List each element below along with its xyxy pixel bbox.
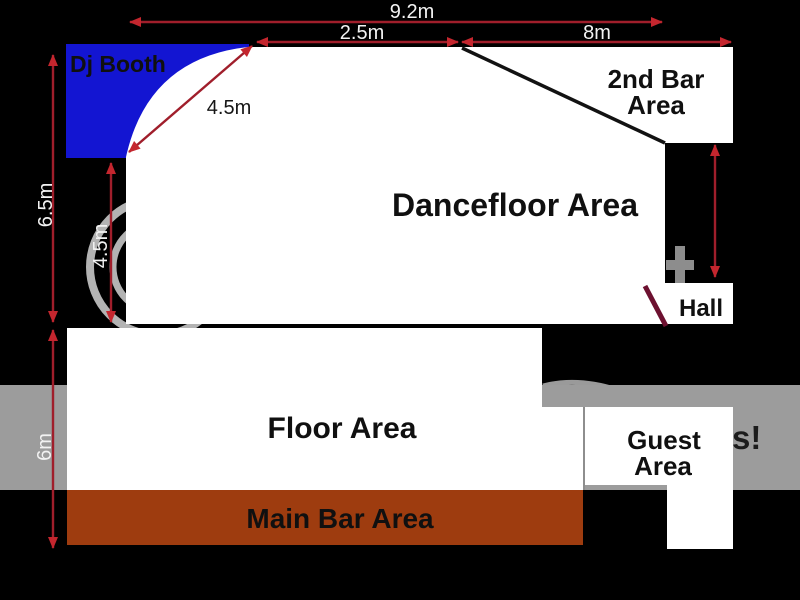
- dim-label-4-5m-left: 4.5m: [90, 224, 112, 268]
- dim-label-6m: 6m: [34, 433, 56, 461]
- floorplan-canvas: P s! Dj Booth Dancefloor Area 2nd Bar Ar…: [0, 0, 800, 600]
- main-bar-label: Main Bar Area: [246, 503, 434, 534]
- dim-label-8m: 8m: [583, 22, 611, 44]
- floorplan-svg: P s! Dj Booth Dancefloor Area 2nd Bar Ar…: [0, 0, 800, 600]
- floor-area: [67, 328, 583, 490]
- dim-label-6-5m: 6.5m: [35, 183, 57, 227]
- hall-label: Hall: [679, 295, 723, 322]
- dim-label-4-5m-diagonal: 4.5m: [207, 97, 251, 119]
- dim-label-9-2m: 9.2m: [390, 1, 434, 23]
- dim-label-2-5m: 2.5m: [340, 22, 384, 44]
- floor-area-label: Floor Area: [268, 412, 417, 445]
- second-bar-label-line2: Area: [627, 90, 685, 120]
- dj-booth-label: Dj Booth: [70, 51, 166, 77]
- watermark-plus-icon: [666, 260, 694, 270]
- guest-area-label-line2: Area: [634, 451, 692, 481]
- dancefloor-label: Dancefloor Area: [392, 187, 638, 223]
- watermark-fragment-right: s!: [732, 419, 761, 456]
